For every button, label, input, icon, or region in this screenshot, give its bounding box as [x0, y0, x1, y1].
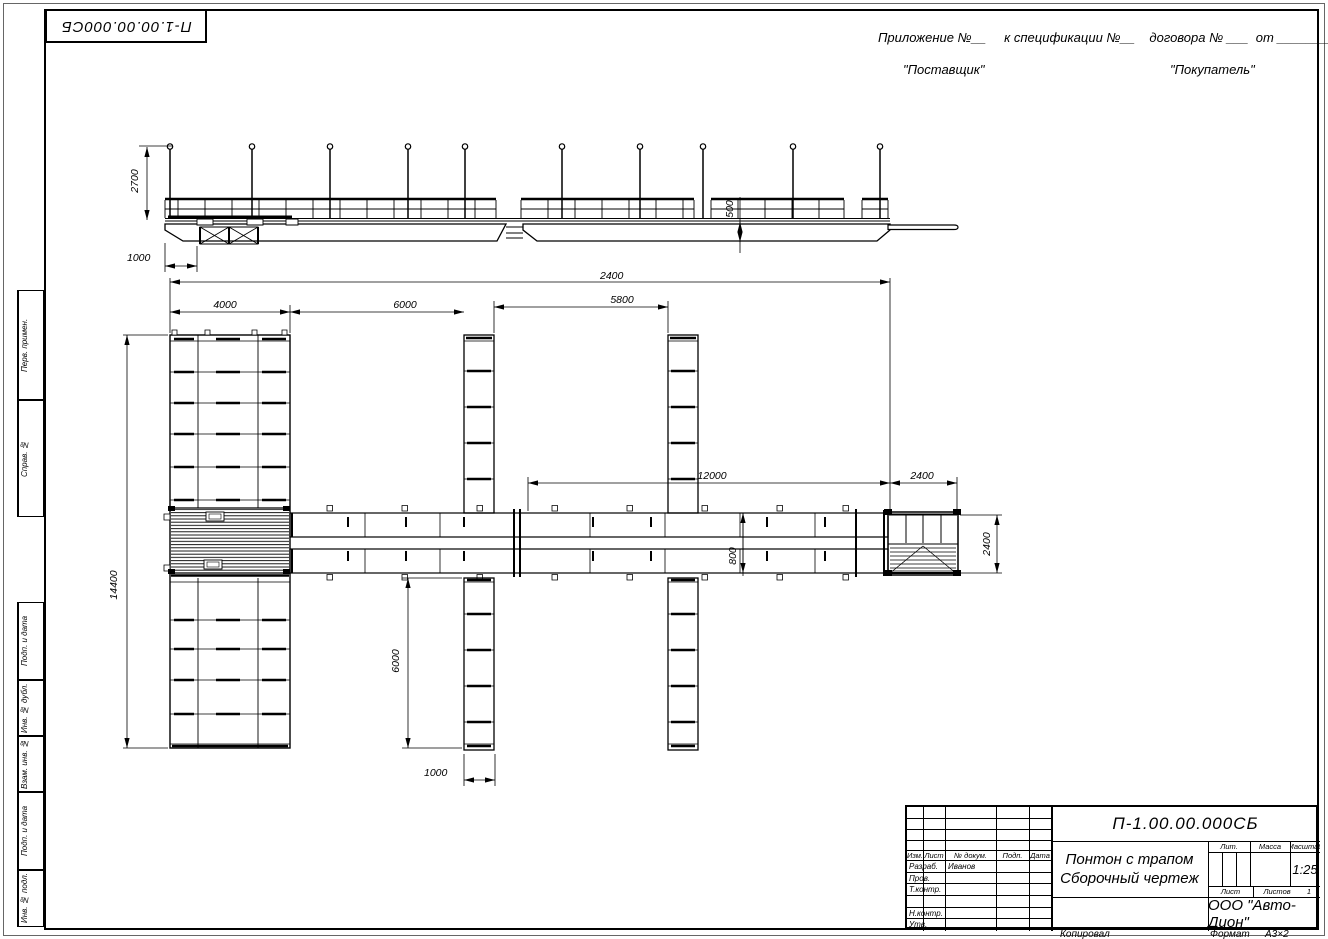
dim-walkway-width: 800: [727, 547, 739, 565]
finger-upper-1: [464, 335, 494, 513]
dim-gap-6000: 6000: [393, 299, 417, 311]
transition-ramp: [168, 506, 290, 576]
listov-label: Листов: [1257, 886, 1297, 897]
dim-finger-width: 1000: [424, 767, 448, 779]
col-ndokum: № докум.: [945, 850, 996, 860]
lit-label: Лит.: [1208, 841, 1250, 852]
massa-label: Масса: [1250, 841, 1290, 852]
walkway: [290, 506, 888, 581]
dim-gap-5800: 5800: [610, 294, 634, 306]
col-data: Дата: [1029, 850, 1051, 860]
dim-block-width: 4000: [213, 299, 237, 311]
drawing-canvas: 2700 1000 500 2400 4000 6000 5800 12000 …: [0, 0, 1328, 939]
dim-walkway-length: 12000: [697, 470, 726, 482]
utv-label: Утв.: [909, 919, 944, 929]
title-doc-number: П-1.00.00.000СБ: [1051, 807, 1320, 841]
format-value: А3×2: [1265, 929, 1289, 939]
listov-value: 1: [1302, 886, 1316, 897]
gangway-plank: [888, 225, 958, 230]
dim-overall-length: 2400: [599, 270, 624, 282]
col-list: Лист: [923, 850, 945, 860]
mooring-posts: [170, 149, 880, 218]
prov-label: Пров.: [909, 873, 944, 883]
finger-lower-2: [668, 578, 698, 750]
finger-upper-2: [668, 335, 698, 513]
drawing-title-line1: Понтон с трапом: [1066, 850, 1194, 869]
format-label: Формат: [1210, 929, 1250, 939]
dim-finger-length: 6000: [390, 649, 402, 673]
razrab-value: Иванов: [948, 861, 994, 871]
finger-lower-1: [464, 578, 494, 750]
copied-label: Копировал: [1060, 929, 1110, 939]
dim-side-height: 2700: [129, 169, 141, 194]
list-label: Лист: [1208, 886, 1253, 897]
walkway-cleats: [327, 506, 849, 581]
dim-side-offset: 1000: [127, 252, 151, 264]
dimensions: 2700 1000 500 2400 4000 6000 5800 12000 …: [108, 146, 1002, 786]
drawing-title: Понтон с трапом Сборочный чертеж: [1051, 841, 1208, 897]
scale-value: 1:25: [1290, 852, 1320, 886]
mooring-post-balls: [167, 144, 882, 149]
nkontr-label: Н.контр.: [909, 908, 944, 918]
side-view: [165, 144, 958, 244]
dim-platform-width: 2400: [981, 532, 993, 557]
dim-block-length: 14400: [108, 570, 120, 599]
col-podp: Подп.: [996, 850, 1029, 860]
end-platform: [884, 509, 961, 576]
razrab-label: Разраб.: [909, 861, 944, 871]
col-izm: Изм.: [907, 850, 923, 860]
dim-freeboard: 500: [724, 200, 736, 218]
drawing-sheet: П-1.00.00.000СБ Приложение №__ к специфи…: [0, 0, 1328, 939]
title-block: Изм. Лист № докум. Подп. Дата Разраб. Ив…: [905, 805, 1318, 929]
drawing-title-line2: Сборочный чертеж: [1060, 869, 1199, 888]
masshtab-label: Масштаб: [1290, 841, 1320, 852]
tkontr-label: Т.контр.: [909, 884, 944, 894]
company-name: ООО "Авто-Дион": [1208, 897, 1320, 931]
dim-platform-length: 2400: [909, 470, 934, 482]
plan-view: [164, 330, 961, 750]
